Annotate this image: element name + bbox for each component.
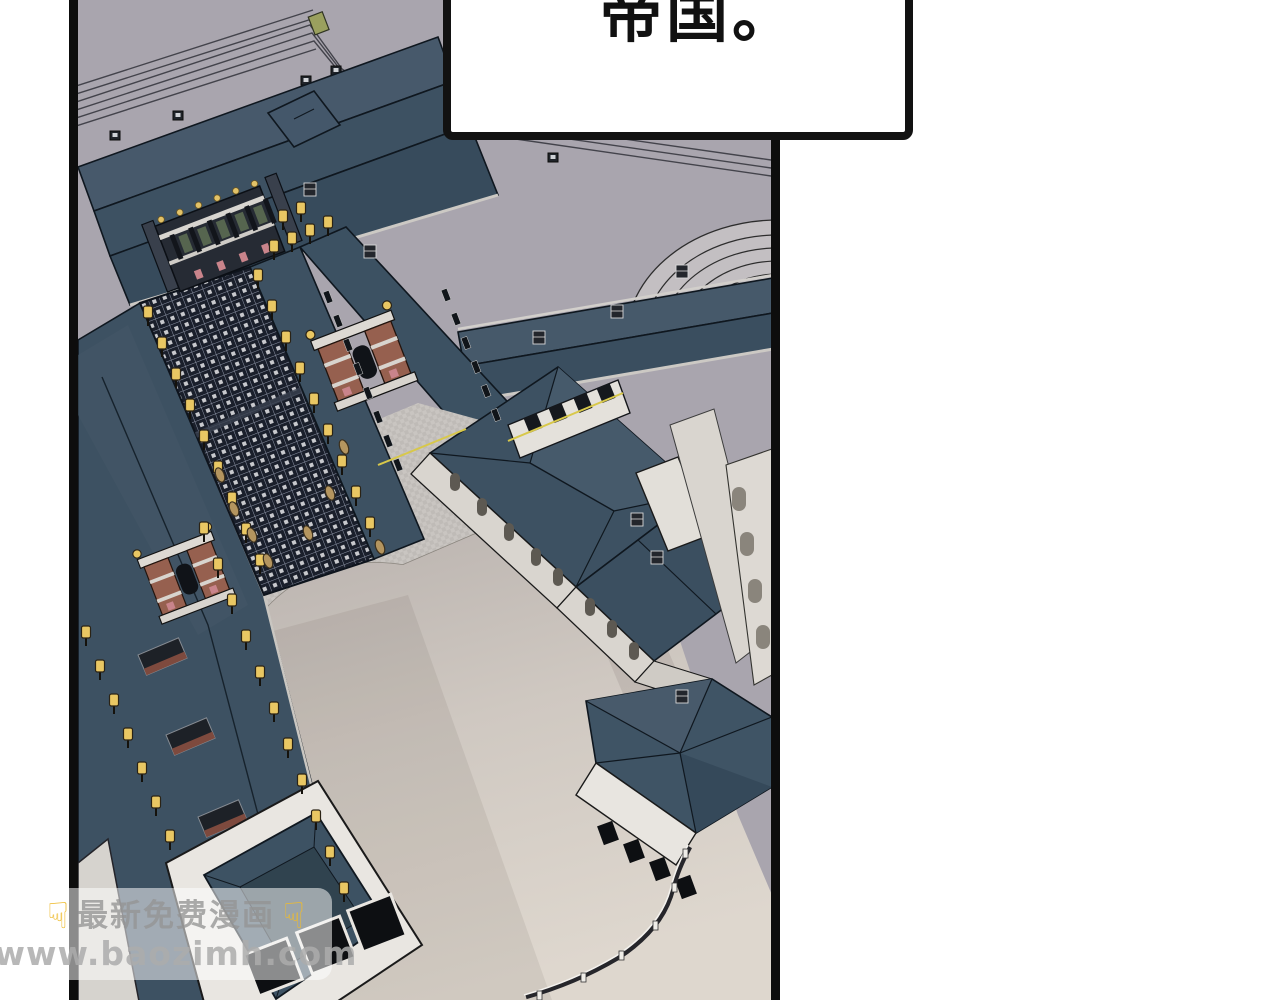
speech-bubble-text: 帝国。 xyxy=(600,0,798,46)
speech-bubble: 帝国。 xyxy=(443,0,913,140)
pointing-down-finger-icon: ☟ xyxy=(283,899,305,935)
comic-page: 帝国。 ☟ 最新免费漫画 ☟ www.baozimh.com xyxy=(0,0,1280,1000)
watermark: ☟ 最新免费漫画 ☟ www.baozimh.com xyxy=(20,888,332,980)
watermark-url: www.baozimh.com xyxy=(0,937,358,970)
pointing-down-finger-icon: ☟ xyxy=(47,899,69,935)
watermark-title-row: ☟ 最新免费漫画 ☟ xyxy=(47,899,305,935)
watermark-title: 最新免费漫画 xyxy=(77,901,275,932)
comic-panel xyxy=(69,0,780,1000)
palace-scene-illustration xyxy=(78,0,771,1000)
